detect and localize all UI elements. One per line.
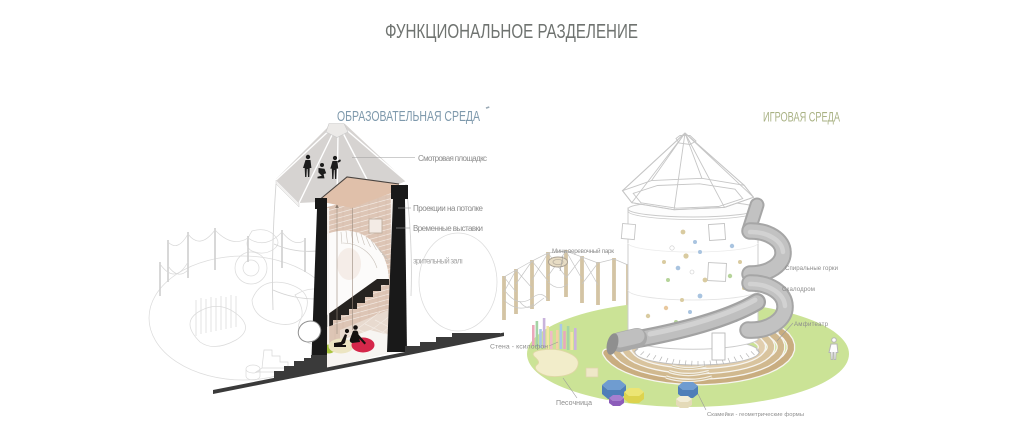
svg-text:Мини веревочный парк: Мини веревочный парк bbox=[552, 247, 614, 255]
svg-text:Амфитеатр: Амфитеатр bbox=[794, 321, 829, 328]
svg-text:зрительный залı: зрительный залı bbox=[413, 257, 463, 266]
svg-text:ОБРАЗОВАТЕЛЬНАЯ СРЕДА: ОБРАЗОВАТЕЛЬНАЯ СРЕДА bbox=[337, 108, 480, 125]
svg-text:Спиральные горки: Спиральные горки bbox=[785, 265, 838, 272]
svg-text:Песочница: Песочница bbox=[556, 400, 592, 407]
svg-text:Смотровая площадкс: Смотровая площадкс bbox=[418, 154, 487, 163]
svg-text:ФУНКЦИОНАЛЬНОЕ РАЗДЕЛЕНИЕ: ФУНКЦИОНАЛЬНОЕ РАЗДЕЛЕНИЕ bbox=[385, 21, 638, 43]
svg-text:Скамейки - геометрические форм: Скамейки - геометрические формы bbox=[707, 411, 804, 418]
svg-text:ИГРОВАЯ СРЕДА: ИГРОВАЯ СРЕДА bbox=[763, 110, 840, 125]
svg-text:Временные выставки: Временные выставки bbox=[413, 224, 483, 233]
svg-text:Стена - ксилофон: Стена - ксилофон bbox=[490, 344, 548, 351]
svg-text:Проекции на потолке: Проекции на потолке bbox=[413, 204, 484, 213]
svg-text:Скалодром: Скалодром bbox=[782, 286, 815, 293]
